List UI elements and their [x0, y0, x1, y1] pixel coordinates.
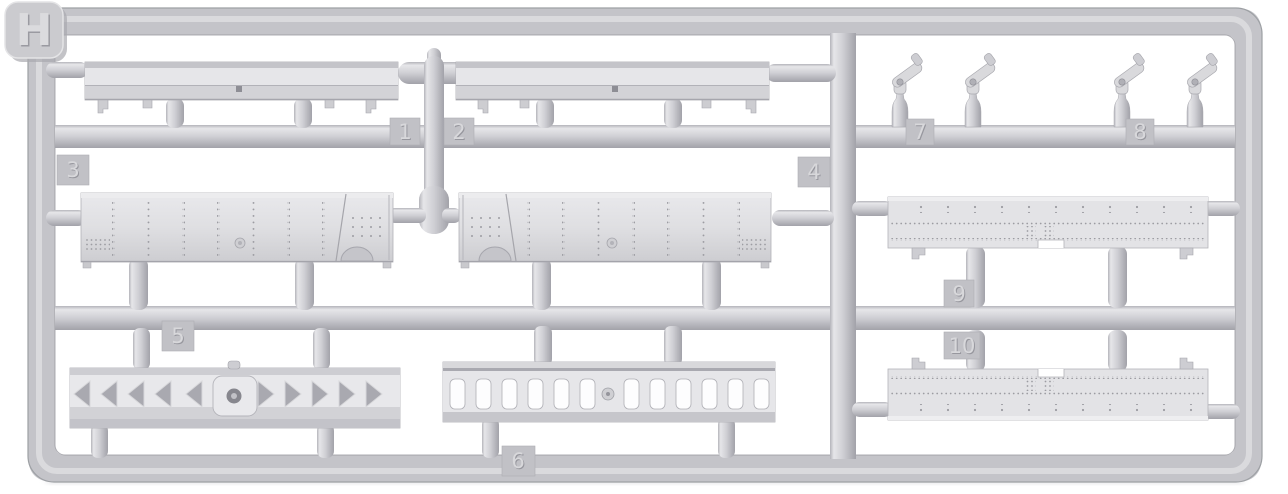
part-4-side-panel [459, 193, 771, 268]
svg-text:9: 9 [952, 282, 965, 306]
svg-text:8: 8 [1133, 120, 1146, 144]
tag-9: 9 9 [944, 280, 974, 307]
svg-text:6: 6 [511, 449, 524, 473]
part-8-clamp-a [1108, 52, 1149, 127]
tag-3: 3 3 [57, 155, 89, 185]
runner-top [55, 125, 1235, 148]
svg-text:1: 1 [398, 120, 411, 144]
runner-middle [55, 306, 1235, 330]
sprue-h-image: H H 1 1 2 2 3 3 4 4 5 5 [0, 0, 1288, 494]
part-6-channel-slots [443, 362, 775, 422]
svg-text:7: 7 [913, 120, 926, 144]
svg-text:10: 10 [949, 334, 976, 358]
part-2-beam [456, 62, 769, 113]
part-1-beam [85, 62, 398, 113]
tag-2: 2 2 [444, 118, 474, 145]
svg-text:2: 2 [452, 120, 465, 144]
part-5-channel-triangles [70, 361, 400, 428]
part-7-clamp-a [886, 52, 927, 127]
tag-1: 1 1 [390, 118, 420, 145]
tag-10: 10 10 [944, 332, 980, 359]
part-7-clamp-b [959, 52, 1000, 127]
part-9-riveted-strip [888, 197, 1208, 259]
tag-6: 6 6 [502, 446, 535, 476]
svg-text:5: 5 [171, 324, 184, 348]
tag-7: 7 7 [906, 119, 934, 145]
tag-8: 8 8 [1126, 119, 1154, 145]
svg-text:3: 3 [66, 158, 79, 182]
svg-text:4: 4 [807, 160, 820, 184]
part-3-side-panel [81, 193, 393, 268]
tag-5: 5 5 [162, 321, 194, 351]
sprue-letter: H [16, 5, 53, 56]
part-8-clamp-b [1181, 52, 1222, 127]
part-10-riveted-strip [888, 358, 1208, 420]
part-5-top-tab [228, 361, 240, 369]
runner-right-vertical [830, 33, 856, 459]
sprue-photo-canvas: H H 1 1 2 2 3 3 4 4 5 5 [0, 0, 1288, 494]
sprue-letter-tab: H H [5, 2, 67, 62]
tag-4: 4 4 [798, 157, 830, 187]
